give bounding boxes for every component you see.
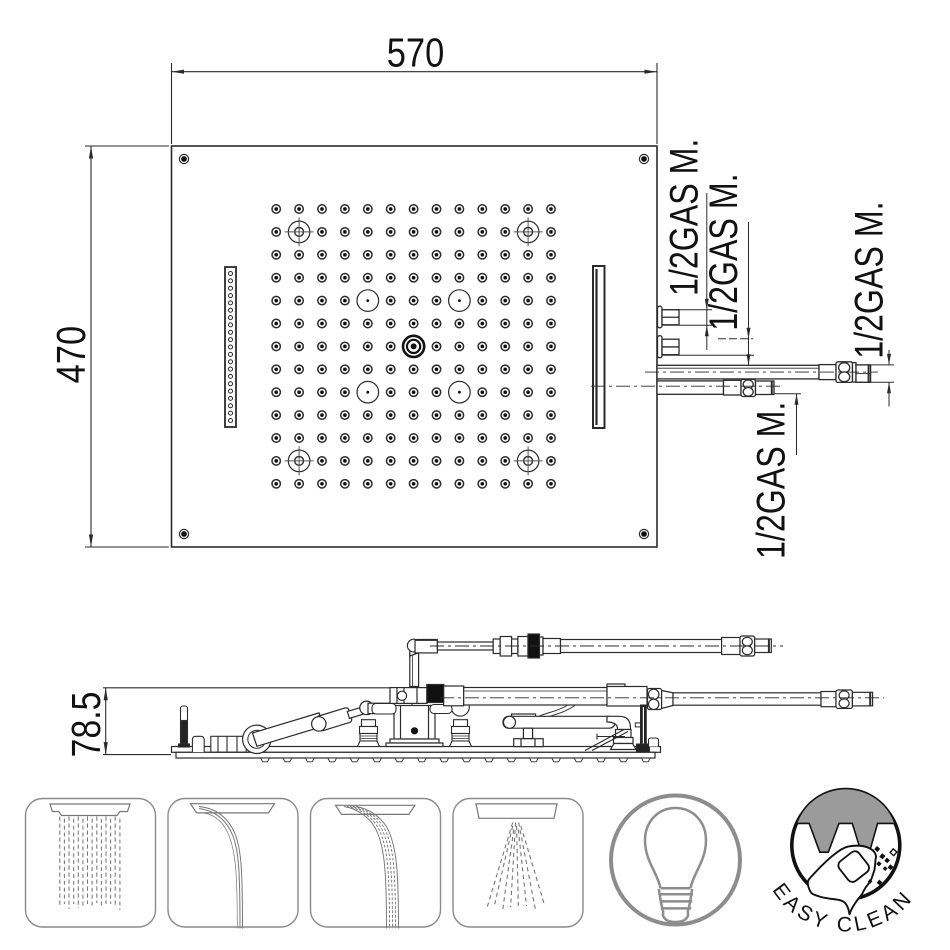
svg-text:1/2GAS M.: 1/2GAS M. xyxy=(662,139,707,296)
svg-text:1/2GAS M.: 1/2GAS M. xyxy=(846,201,891,358)
svg-text:1/2GAS M.: 1/2GAS M. xyxy=(701,173,746,330)
svg-text:78.5: 78.5 xyxy=(63,692,109,758)
svg-text:470: 470 xyxy=(49,326,94,383)
svg-text:570: 570 xyxy=(387,31,444,76)
svg-text:1/2GAS M.: 1/2GAS M. xyxy=(748,402,793,559)
